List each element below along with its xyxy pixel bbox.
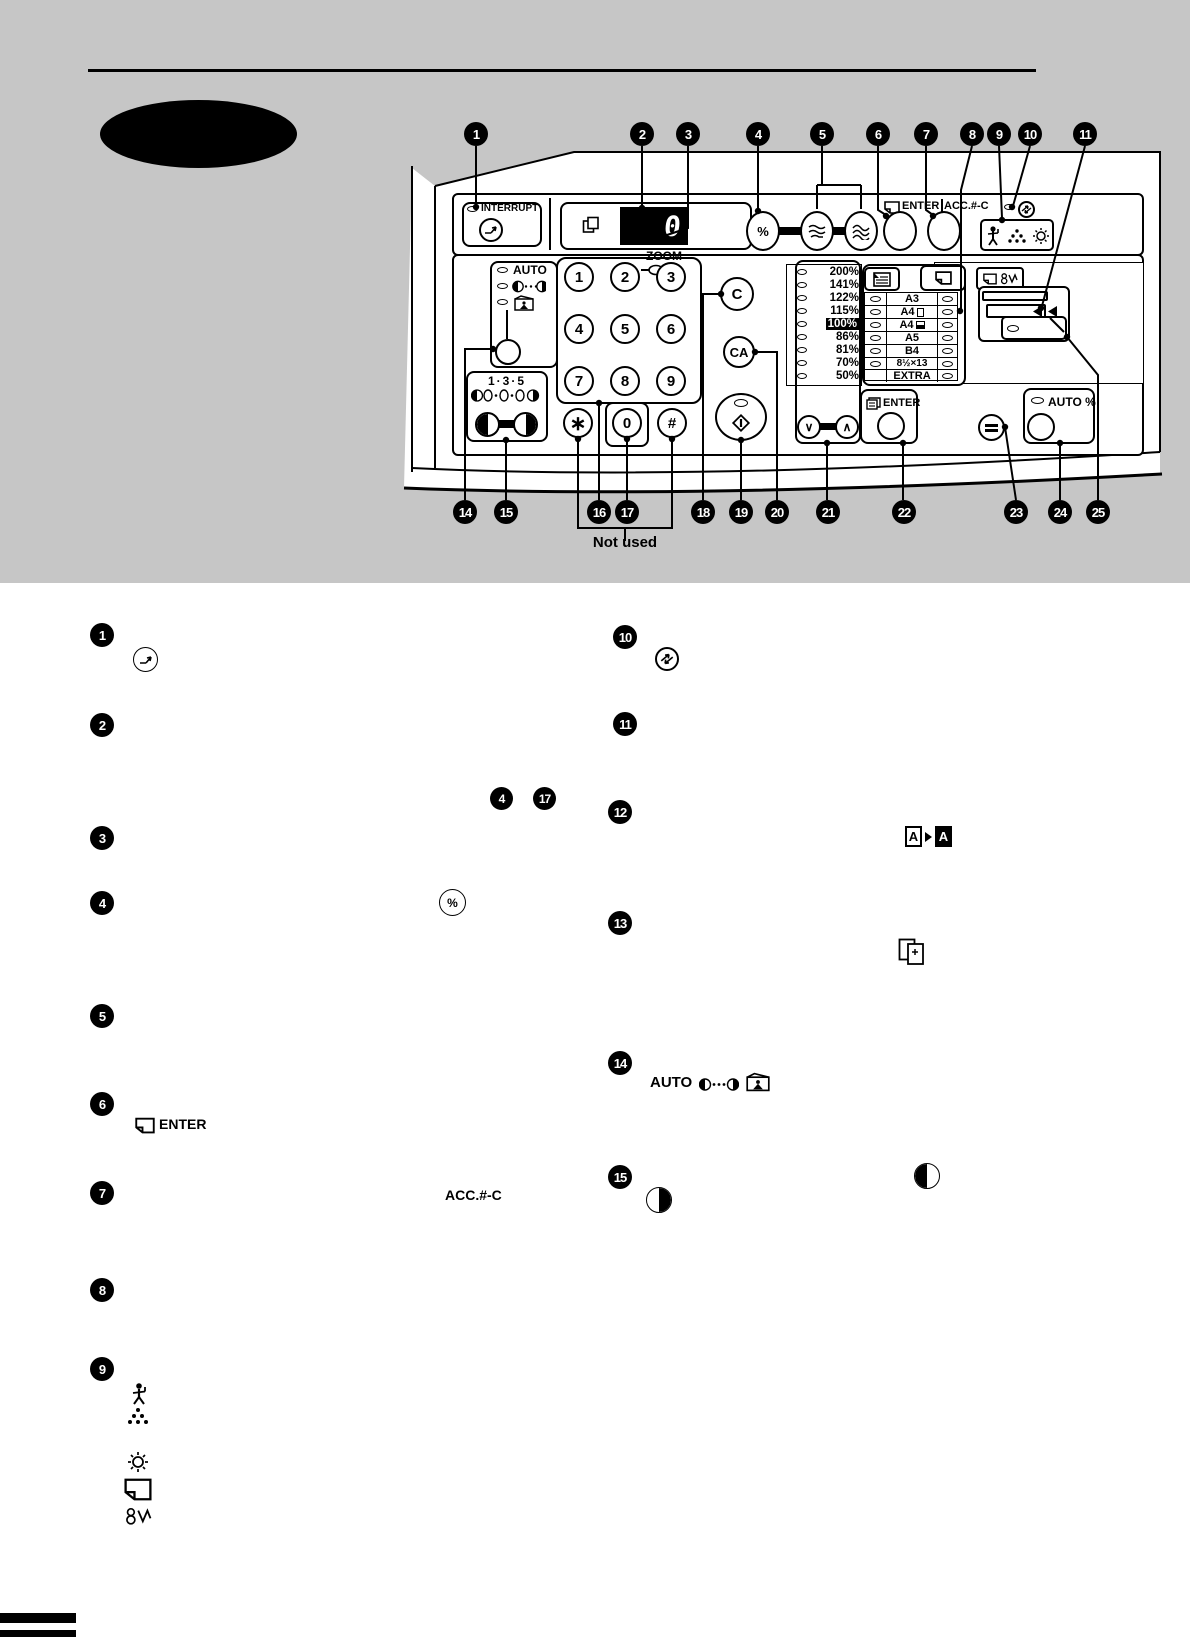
- key-3: 3: [656, 262, 686, 292]
- original-led-cell: [865, 358, 887, 369]
- legend-item-6: 6: [90, 1092, 114, 1116]
- paper-legend-icon: [123, 1478, 153, 1501]
- enter-bottom-label: ENTER: [883, 397, 920, 409]
- led-oval: [870, 335, 881, 341]
- ratio-label: 115%: [811, 305, 859, 317]
- paper-row: A4: [865, 306, 957, 319]
- ratio-led: [797, 295, 807, 301]
- paper-row: B4: [865, 345, 957, 358]
- developer-icon: [1033, 228, 1049, 244]
- auto-percent-led: [1031, 397, 1044, 404]
- paper-led-cell: [937, 319, 957, 331]
- ratio-led: [797, 347, 807, 353]
- callout-8: 8: [960, 122, 984, 146]
- maintenance-person-icon: [988, 226, 998, 245]
- power-save-led: [1004, 204, 1014, 210]
- auto-label: AUTO: [513, 263, 547, 277]
- manual-exposure-led: [497, 283, 508, 289]
- original-led-cell: [865, 293, 887, 305]
- legend-ref-17: 17: [533, 787, 556, 810]
- clear-button: C: [720, 277, 754, 311]
- paper-led-cell: [937, 293, 957, 305]
- acc-oval-button: [927, 211, 961, 251]
- led-oval: [942, 322, 953, 328]
- photo-exposure-led: [497, 299, 508, 305]
- exposure-scale-icon: [471, 388, 543, 403]
- legend-ref-4: 4: [490, 787, 513, 810]
- led-oval: [942, 309, 953, 315]
- button-link-bar-1: [779, 227, 801, 235]
- callout-6: 6: [866, 122, 890, 146]
- paper-size-label: A5: [887, 332, 937, 344]
- zoom-up-button: ∧: [835, 415, 859, 439]
- paper-size-table: A3 A4 A4 A5 B4 8½×13 EXTRA: [864, 292, 958, 381]
- ratio-led: [797, 308, 807, 314]
- copy-paper-tab: [920, 265, 966, 291]
- legend-item-5: 5: [90, 1004, 114, 1028]
- callout-4: 4: [746, 122, 770, 146]
- key-4: 4: [564, 314, 594, 344]
- led-oval: [942, 373, 953, 379]
- original-led-cell: [865, 345, 887, 357]
- enter-oval-button: [883, 211, 917, 251]
- callout-14: 14: [453, 500, 477, 524]
- dark-waves-icon: [850, 222, 872, 240]
- led-oval: [870, 361, 881, 367]
- legend-item-9: 9: [90, 1357, 114, 1381]
- light-waves-icon: [806, 222, 828, 240]
- photo-mode-icon: [514, 295, 534, 311]
- paper-led-cell: [937, 370, 957, 382]
- toner-legend-icon: [126, 1407, 150, 1427]
- callout-7: 7: [914, 122, 938, 146]
- callout-21: 21: [816, 500, 840, 524]
- paper-enter-legend-icon: [135, 1117, 155, 1134]
- ratio-label: 200%: [811, 266, 859, 278]
- legend-item-10: 10: [613, 625, 637, 649]
- copy-count-display: 0: [620, 207, 688, 245]
- ratio-display-button: %: [746, 211, 780, 251]
- paper-size-label: EXTRA: [887, 370, 937, 382]
- interrupt-led: [467, 206, 478, 212]
- section-title-oval: [100, 100, 297, 168]
- key-8: 8: [610, 366, 640, 396]
- ratio-row: 141%: [797, 279, 859, 292]
- original-led-cell: [865, 319, 887, 331]
- callout-23: 23: [1004, 500, 1028, 524]
- exposure-range-legend-icon: [699, 1077, 739, 1092]
- ratio-row: 200%: [797, 266, 859, 279]
- ratio-row-selected: 100%: [797, 318, 859, 331]
- callout-18: 18: [691, 500, 715, 524]
- legend-item-1: 1: [90, 623, 114, 647]
- darker-legend-icon: [646, 1187, 672, 1213]
- key-6: 6: [656, 314, 686, 344]
- tray-page-icon: [916, 321, 925, 329]
- photo-mode-legend-icon: [746, 1072, 770, 1092]
- tray-bar-1: [982, 291, 1048, 301]
- legend-item-14: 14: [608, 1051, 632, 1075]
- key-5: 5: [610, 314, 640, 344]
- auto-exposure-led: [497, 267, 508, 273]
- clear-all-button: CA: [723, 336, 755, 368]
- callout-10: 10: [1018, 122, 1042, 146]
- callout-17: 17: [615, 500, 639, 524]
- start-led: [734, 399, 748, 407]
- original-a-box: A: [905, 826, 922, 847]
- original-doc-icon: [873, 272, 891, 287]
- copy-a-box: A: [935, 826, 952, 847]
- callout-24: 24: [1048, 500, 1072, 524]
- led-oval: [942, 348, 953, 354]
- callout-20: 20: [765, 500, 789, 524]
- interrupt-label: INTERRUPT: [481, 203, 538, 214]
- power-save-icon: [1018, 201, 1035, 218]
- ratio-label: 86%: [811, 331, 859, 343]
- maintenance-person-legend-icon: [129, 1382, 149, 1406]
- callout-22: 22: [892, 500, 916, 524]
- arrow-right-icon: [925, 832, 932, 842]
- maintenance-icons: [982, 221, 1052, 249]
- ratio-led: [797, 321, 807, 327]
- legend-item-8: 8: [90, 1278, 114, 1302]
- key-star: ∗: [563, 408, 593, 438]
- led-oval: [942, 296, 953, 302]
- enter-doc-icon: [866, 397, 881, 410]
- not-used-label: Not used: [560, 534, 690, 551]
- bypass-led: [1007, 325, 1019, 332]
- auto-legend-label: AUTO: [650, 1074, 692, 1091]
- legend-item-13: 13: [608, 911, 632, 935]
- callout-1: 1: [464, 122, 488, 146]
- paper-led-cell: [937, 332, 957, 344]
- interrupt-icon: [138, 653, 154, 667]
- copy-size-legend-icon: A A: [905, 826, 952, 847]
- percent-legend-icon: %: [439, 889, 466, 916]
- start-icon: [729, 411, 753, 435]
- exposure-mode-button: [495, 339, 521, 365]
- key-2: 2: [610, 262, 640, 292]
- ratio-led: [797, 360, 807, 366]
- toner-icon: [1008, 229, 1025, 242]
- ratio-row: 115%: [797, 305, 859, 318]
- enter-button: [877, 412, 905, 440]
- multi-page-legend-icon: [898, 938, 928, 965]
- paper-row: A3: [865, 293, 957, 306]
- copy-paper-icon: [935, 271, 952, 285]
- ratio-row: 70%: [797, 356, 859, 369]
- manual-exposure-icon: [512, 280, 546, 293]
- manual-page: { "colors": { "band": "#c6c6c6", "ink": …: [0, 0, 1190, 1637]
- power-save-legend-icon: [655, 647, 679, 671]
- led-oval: [942, 335, 953, 341]
- tray-select-button: [978, 414, 1005, 441]
- paper-size-label: A4: [887, 319, 937, 331]
- ratio-row: 122%: [797, 292, 859, 305]
- exposure-light-button: [800, 211, 834, 251]
- copies-icon: [582, 216, 600, 234]
- portrait-page-icon: [917, 308, 924, 317]
- callout-25: 25: [1086, 500, 1110, 524]
- copy-count-value: 0: [662, 210, 682, 243]
- paper-size-label: B4: [887, 345, 937, 357]
- recycle-arrows-icon: [1021, 204, 1032, 215]
- ratio-led: [797, 269, 807, 275]
- half-left-fill: [915, 1164, 927, 1188]
- ratio-label: 141%: [811, 279, 859, 291]
- footer-bar-1: [0, 1613, 76, 1623]
- paper-led-cell: [937, 358, 957, 369]
- interrupt-icon: [483, 223, 499, 237]
- percent-glyph: %: [757, 224, 769, 239]
- footer-bar-2: [0, 1630, 76, 1637]
- lighter-legend-icon: [914, 1163, 940, 1189]
- exposure-dark-button: [844, 211, 878, 251]
- original-size-tab: [864, 267, 900, 291]
- legend-item-3: 3: [90, 826, 114, 850]
- ratio-row: 86%: [797, 330, 859, 343]
- ratio-led: [797, 373, 807, 379]
- interrupt-legend-icon: [133, 647, 158, 672]
- top-rule: [88, 69, 1036, 72]
- callout-15: 15: [494, 500, 518, 524]
- misfeed-legend-icon: [126, 1505, 152, 1527]
- paper-row: 8½×13: [865, 358, 957, 370]
- led-oval: [870, 322, 881, 328]
- maintenance-indicator-box: [980, 219, 1054, 251]
- auto-percent-label: AUTO %: [1048, 395, 1096, 409]
- original-led-cell: [865, 306, 887, 318]
- ratio-label: 81%: [811, 344, 859, 356]
- auto-percent-button: [1027, 413, 1055, 441]
- ratio-led-list: 200% 141% 122% 115% 100% 86% 81% 70% 50%: [797, 266, 859, 382]
- ratio-row: 81%: [797, 343, 859, 356]
- exit-arrows: [1032, 305, 1058, 318]
- half-left-fill: [477, 414, 488, 435]
- key-1: 1: [564, 262, 594, 292]
- callout-11: 11: [1073, 122, 1097, 146]
- callout-5: 5: [810, 122, 834, 146]
- ratio-label: 50%: [811, 370, 859, 382]
- led-oval: [942, 361, 953, 367]
- paper-row: EXTRA: [865, 370, 957, 382]
- key-0: 0: [612, 408, 642, 438]
- callout-9: 9: [987, 122, 1011, 146]
- enter-top-label: ENTER: [902, 200, 939, 212]
- legend-item-2: 2: [90, 713, 114, 737]
- paper-led-cell: [937, 306, 957, 318]
- ratio-label: 100%: [811, 318, 859, 330]
- led-oval: [870, 296, 881, 302]
- callout-16: 16: [587, 500, 611, 524]
- interrupt-button: [479, 218, 503, 242]
- callout-2: 2: [630, 122, 654, 146]
- up-glyph: ∧: [843, 420, 852, 434]
- paper-row: A5: [865, 332, 957, 345]
- legend-item-7: 7: [90, 1181, 114, 1205]
- darker-button: [513, 412, 538, 437]
- legend-item-4: 4: [90, 891, 114, 915]
- tray-select-icon: [985, 423, 998, 433]
- down-glyph: ∨: [805, 420, 814, 434]
- half-right-fill: [526, 414, 537, 435]
- led-oval: [870, 309, 881, 315]
- acc-legend-label: ACC.#-C: [445, 1187, 502, 1203]
- acc-label: ACC.#-C: [944, 200, 989, 212]
- half-right-fill: [659, 1188, 671, 1212]
- zoom-label: ZOOM: [646, 249, 682, 263]
- key-7: 7: [564, 366, 594, 396]
- callout-3: 3: [676, 122, 700, 146]
- ratio-led: [797, 282, 807, 288]
- original-led-cell: [865, 332, 887, 344]
- led-oval: [870, 348, 881, 354]
- paper-icon: [983, 273, 997, 285]
- callout-19: 19: [729, 500, 753, 524]
- legend-item-15: 15: [608, 1165, 632, 1189]
- paper-row: A4: [865, 319, 957, 332]
- original-led-cell: [865, 370, 887, 382]
- zoom-down-button: ∨: [797, 415, 821, 439]
- ratio-label: 122%: [811, 292, 859, 304]
- paper-size-label: 8½×13: [887, 358, 937, 369]
- key-9: 9: [656, 366, 686, 396]
- recycle-arrows-icon: [660, 652, 674, 666]
- legend-item-11: 11: [613, 712, 637, 736]
- lighter-button: [475, 412, 500, 437]
- ratio-row: 50%: [797, 369, 859, 382]
- developer-legend-icon: [125, 1450, 151, 1474]
- key-hash: #: [657, 408, 687, 438]
- ratio-label: 70%: [811, 357, 859, 369]
- misfeed-icon: [1001, 272, 1018, 285]
- paper-led-cell: [937, 345, 957, 357]
- zoom-link-bar: [820, 423, 836, 430]
- legend-item-12: 12: [608, 800, 632, 824]
- exposure-scale-label: 1·3·5: [466, 374, 548, 388]
- paper-size-label: A3: [887, 293, 937, 305]
- top-row-divider: [549, 198, 551, 250]
- ratio-led: [797, 334, 807, 340]
- paper-size-label: A4: [887, 306, 937, 318]
- enter-legend-label: ENTER: [159, 1116, 206, 1132]
